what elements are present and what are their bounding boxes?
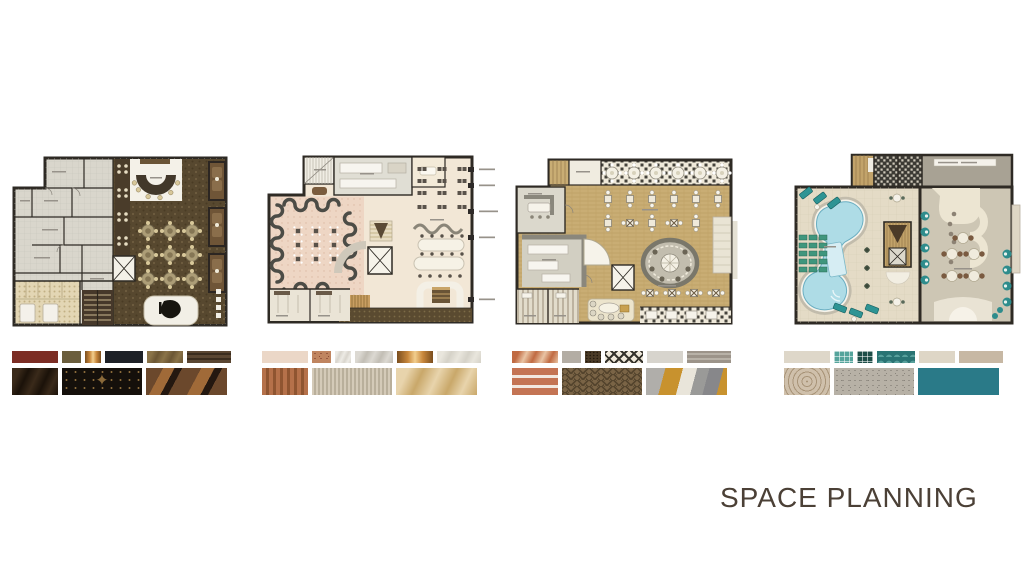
material-swatch-dark-wood-stripe — [187, 351, 231, 363]
booth-seating — [208, 161, 226, 293]
palette-row-top — [784, 351, 1022, 363]
palette-row-top — [12, 351, 241, 363]
board-wood-restaurant — [512, 147, 738, 400]
palette-row-top — [512, 351, 738, 363]
palette-row-top — [262, 351, 500, 363]
material-palette-pool — [784, 351, 1022, 395]
material-swatch-teal-lacquer — [918, 368, 999, 395]
service-rooms — [852, 155, 1012, 187]
restrooms-area — [517, 289, 579, 323]
material-swatch-terracotta-frieze-tile — [512, 368, 558, 395]
material-swatch-grey-wood-plank — [687, 351, 731, 363]
material-swatch-terrazzo-stone — [834, 368, 914, 395]
stairs-icon — [82, 290, 113, 325]
slide: SPACE PLANNING — [0, 0, 1024, 576]
material-swatch-bone-tile — [784, 351, 830, 363]
material-palette-wood — [512, 351, 738, 395]
kitchen-area — [522, 237, 584, 287]
material-swatch-beige-medallion-carpet — [784, 368, 830, 395]
material-swatch-grey-marble — [355, 351, 393, 363]
material-swatch-deep-teal-mosaic — [857, 351, 873, 363]
material-swatch-teal-mosaic — [834, 351, 853, 363]
material-swatch-olive-wood — [62, 351, 81, 363]
material-swatch-harlequin-tile — [605, 351, 643, 363]
palette-row-bottom — [784, 368, 1022, 395]
private-dining-oval — [643, 240, 697, 286]
stair-core — [884, 222, 911, 267]
material-swatch-taupe-stone — [959, 351, 1003, 363]
material-swatch-ivory-texture — [437, 351, 481, 363]
bar-area — [130, 159, 182, 201]
material-swatch-ivory-plaster — [919, 351, 955, 363]
elevator-icon — [368, 247, 392, 274]
floor-plan-wood-restaurant — [512, 147, 738, 333]
lounge-tables — [293, 226, 338, 263]
piano-lounge — [144, 296, 198, 325]
dining-tables — [138, 221, 202, 289]
material-swatch-dark-emperador-marble — [12, 368, 58, 395]
material-palette-lounge-bar — [12, 351, 241, 395]
floor-plan-lounge-bar — [12, 149, 241, 333]
material-swatch-copper-metal — [397, 351, 433, 363]
floor-plan-blush-restaurant — [262, 149, 500, 333]
board-pool-deck — [784, 150, 1022, 400]
material-swatch-maroon-leather — [12, 351, 58, 363]
material-swatch-blush-plaster — [262, 351, 308, 363]
material-swatch-light-grey-stone — [647, 351, 683, 363]
stair-landing — [370, 221, 392, 241]
material-swatch-gilded-abstract-art — [646, 368, 727, 395]
material-swatch-rust-marble — [512, 351, 558, 363]
material-swatch-black-gold-fabric — [62, 368, 142, 395]
material-swatch-white-marble — [335, 351, 351, 363]
board-blush-restaurant — [262, 149, 500, 400]
board-lounge-bar — [12, 149, 241, 400]
material-swatch-grey-stone — [562, 351, 581, 363]
material-swatch-walnut-veneer — [147, 351, 183, 363]
kitchen-area — [334, 157, 412, 195]
elevator-icon — [612, 265, 634, 290]
palette-row-bottom — [12, 368, 241, 395]
material-swatch-charcoal-navy — [105, 351, 143, 363]
floor-plan-pool-deck — [784, 150, 1022, 333]
palette-row-bottom — [262, 368, 500, 395]
buffet-counter — [588, 299, 634, 321]
slide-title: SPACE PLANNING — [720, 482, 978, 514]
material-swatch-honey-onyx-marble — [396, 368, 477, 395]
material-swatch-terracotta-stone — [312, 351, 331, 363]
material-swatch-copper-metal — [85, 351, 101, 363]
booth-strip — [640, 307, 731, 323]
material-swatch-beige-fluted-panel — [312, 368, 392, 395]
material-swatch-herringbone-wood — [562, 368, 642, 395]
material-swatch-art-deco-marquetry — [146, 368, 227, 395]
material-swatch-teal-fishscale-tile — [877, 351, 915, 363]
checkered-terrace — [601, 161, 732, 185]
material-swatch-dark-rattan-weave — [585, 351, 601, 363]
elevator-icon — [113, 256, 135, 281]
material-swatch-terracotta-slats — [262, 368, 308, 395]
palette-row-bottom — [512, 368, 738, 395]
material-palette-blush — [262, 351, 500, 395]
